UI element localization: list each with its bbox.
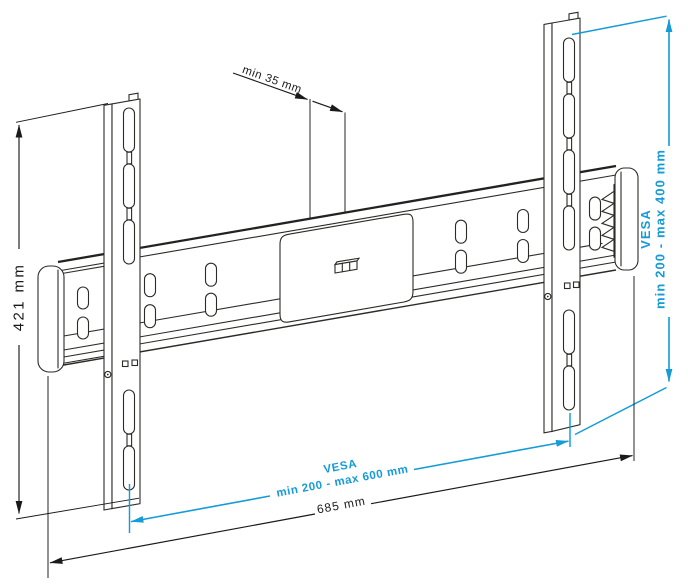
mount-hole (78, 287, 89, 309)
bracket-slot (124, 390, 135, 434)
vesa-vertical-title: VESA (638, 209, 653, 249)
right-end-cap (615, 168, 638, 270)
mount-hole (456, 250, 467, 273)
mount-hole (206, 263, 217, 286)
slot-link (567, 354, 572, 366)
center-plate (280, 214, 413, 322)
mount-hole (518, 210, 529, 233)
bracket-slot (124, 108, 135, 152)
depth-label: min 35 mm (241, 64, 304, 96)
bracket-slot (564, 38, 575, 82)
dimension-depth: min 35 mm (233, 64, 345, 218)
bracket-slot (124, 220, 135, 264)
bracket-slot (564, 310, 575, 354)
mount-hole (456, 220, 467, 243)
slot-link (127, 152, 132, 164)
slot-link (567, 82, 572, 94)
square-hole (565, 283, 571, 289)
bracket-slot (124, 446, 135, 490)
mount-hole (206, 293, 217, 316)
bracket-screw (545, 293, 551, 299)
vesa-vertical-range: min 200 - max 400 mm (653, 149, 668, 309)
mount-hole (145, 274, 156, 297)
slot-link (127, 208, 132, 220)
bracket-screw (105, 371, 111, 377)
technical-drawing-page: min 35 mm 421 mm VESA min 200 - max 400 … (0, 0, 688, 585)
square-hole (123, 361, 129, 367)
bracket-side-face (544, 23, 552, 433)
width-label: 685 mm (316, 494, 367, 517)
mount-hole (590, 197, 601, 220)
ratchet-teeth (602, 184, 614, 257)
square-hole (132, 360, 138, 366)
left-bracket (104, 93, 140, 510)
mount-hole (145, 305, 156, 328)
height-label: 421 mm (11, 263, 28, 332)
bracket-slot (124, 164, 135, 208)
bracket-slot (564, 366, 575, 410)
mount-hole (590, 227, 601, 250)
mount-hole (518, 240, 529, 263)
slot-link (567, 194, 572, 206)
wall-mount-drawing: min 35 mm 421 mm VESA min 200 - max 400 … (0, 0, 688, 585)
bracket-side-face (104, 104, 112, 510)
bracket-slot (564, 94, 575, 138)
slot-link (127, 434, 132, 446)
dimension-vesa-horizontal: VESA min 200 - max 600 mm (130, 413, 571, 533)
mount-hole (78, 317, 89, 339)
bracket-slot (564, 150, 575, 194)
left-end-cap (38, 266, 64, 372)
slot-link (567, 138, 572, 150)
square-hole (574, 282, 580, 288)
bracket-slot (564, 206, 575, 250)
right-bracket (544, 12, 580, 433)
